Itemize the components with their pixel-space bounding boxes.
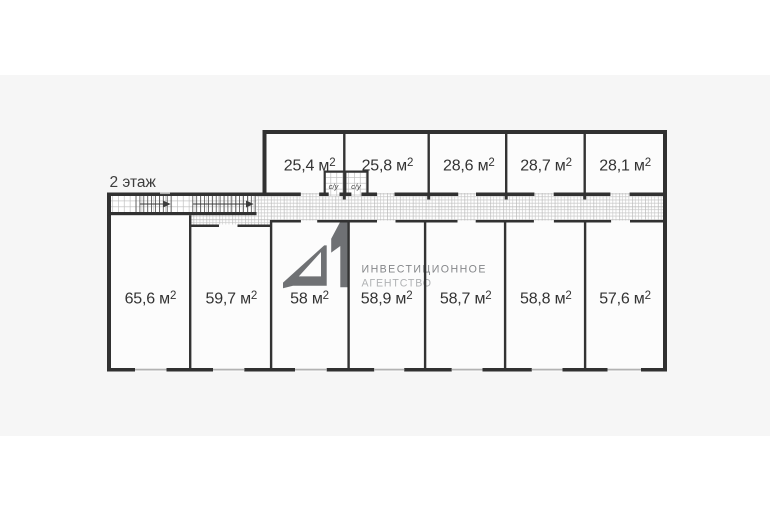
svg-text:58,7 м2: 58,7 м2: [440, 290, 492, 308]
svg-text:58,9 м2: 58,9 м2: [361, 290, 413, 308]
svg-text:с/у: с/у: [351, 182, 362, 191]
svg-text:2 этаж: 2 этаж: [110, 174, 157, 191]
svg-text:АГЕНТСТВО: АГЕНТСТВО: [362, 278, 432, 290]
svg-text:59,7 м2: 59,7 м2: [206, 290, 258, 308]
svg-text:с/у: с/у: [329, 182, 340, 191]
svg-text:57,6 м2: 57,6 м2: [599, 290, 651, 308]
svg-text:25,4 м2: 25,4 м2: [284, 157, 336, 175]
svg-text:28,7 м2: 28,7 м2: [520, 157, 572, 175]
svg-text:25,8 м2: 25,8 м2: [362, 157, 414, 175]
svg-text:65,6 м2: 65,6 м2: [125, 290, 177, 308]
svg-text:58,8 м2: 58,8 м2: [520, 290, 572, 308]
svg-text:28,1 м2: 28,1 м2: [599, 157, 651, 175]
svg-text:28,6 м2: 28,6 м2: [443, 157, 495, 175]
